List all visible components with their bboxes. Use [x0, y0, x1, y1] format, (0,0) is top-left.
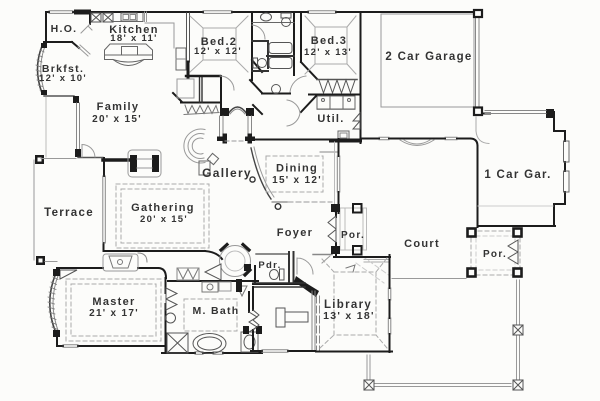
- svg-text:M. Bath: M. Bath: [192, 305, 239, 317]
- svg-text:Gallery: Gallery: [202, 166, 252, 180]
- svg-text:12' x 13': 12' x 13': [304, 47, 352, 58]
- svg-text:20' x 15': 20' x 15': [140, 214, 188, 225]
- svg-text:12' x 12': 12' x 12': [194, 46, 242, 57]
- svg-text:2 Car Garage: 2 Car Garage: [385, 51, 472, 63]
- svg-text:H.O.: H.O.: [51, 23, 78, 35]
- svg-text:21' x 17': 21' x 17': [89, 308, 139, 319]
- svg-text:Court: Court: [404, 238, 440, 250]
- svg-text:Terrace: Terrace: [44, 207, 94, 219]
- svg-text:Bed.3: Bed.3: [311, 35, 347, 47]
- svg-text:Por.: Por.: [483, 249, 507, 260]
- svg-text:13' x 18': 13' x 18': [323, 310, 375, 322]
- svg-text:15' x 12': 15' x 12': [272, 175, 322, 186]
- svg-text:Foyer: Foyer: [277, 227, 313, 239]
- svg-text:Pdr.: Pdr.: [258, 260, 281, 271]
- svg-text:Util.: Util.: [317, 113, 344, 125]
- svg-text:Dining: Dining: [276, 163, 318, 175]
- svg-text:Por.: Por.: [341, 230, 365, 241]
- svg-text:12' x 10': 12' x 10': [39, 73, 87, 84]
- svg-text:20' x 15': 20' x 15': [92, 114, 142, 125]
- svg-text:Gathering: Gathering: [131, 202, 195, 214]
- svg-text:1 Car Gar.: 1 Car Gar.: [484, 169, 551, 181]
- svg-text:Master: Master: [92, 296, 135, 308]
- svg-text:18' x 11': 18' x 11': [110, 33, 157, 44]
- svg-text:Family: Family: [97, 101, 140, 113]
